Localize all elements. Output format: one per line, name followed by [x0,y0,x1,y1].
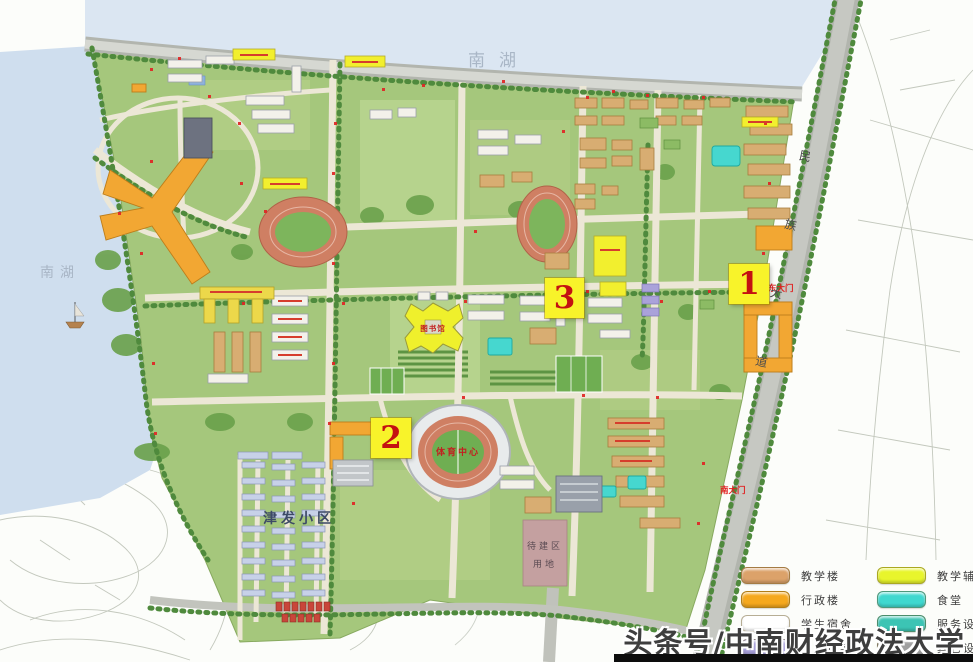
reserved-plot [523,520,567,586]
legend-item: 食堂 [877,591,973,608]
gate-south-label: 南大门 [720,485,746,496]
marker-2: 2 [371,418,411,458]
marker-1: 1 [729,264,769,304]
gray-hall [556,476,602,512]
legend-label: 教学楼 [801,568,840,584]
library-label: 图书馆 [420,323,446,333]
legend-swatch [877,567,926,584]
legend-item: 教学楼 [741,567,853,584]
legend-label: 食堂 [937,592,963,608]
legend-swatch [741,567,790,584]
marker-2-number: 2 [380,420,402,456]
lake-west-label: 南湖 [40,265,80,281]
marker-3-number: 3 [554,280,576,316]
legend-label: 行政楼 [801,592,840,608]
plot-label-1: 待建区 [527,540,563,552]
legend-item: 教学辅助设施 [877,567,973,584]
campus-map-page: 南湖 南湖 津发小区 体育中心 图书馆 东大门 南大门 民族大道 待建区 用地 … [0,0,973,662]
legend-swatch [741,591,790,608]
track-northwest [259,197,347,267]
legend-label: 教学辅助设施 [937,568,973,584]
plot-label-2: 用地 [533,558,557,570]
marker-3: 3 [545,278,584,318]
marker-1-number: 1 [738,266,760,302]
campus-map: 南湖 南湖 津发小区 体育中心 图书馆 东大门 南大门 民族大道 待建区 用地 [0,0,973,662]
track-north [517,186,577,262]
legend-item: 行政楼 [741,591,853,608]
lake-north-label: 南湖 [468,51,530,71]
legend-swatch [877,591,926,608]
stadium-label: 体育中心 [436,446,480,458]
residential-label: 津发小区 [263,510,335,527]
bottom-black-bar [614,654,973,662]
